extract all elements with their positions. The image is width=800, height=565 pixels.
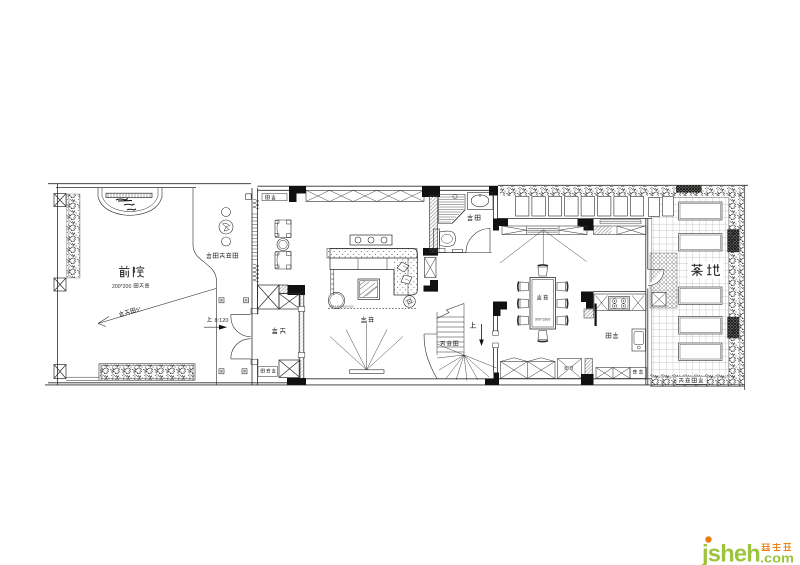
svg-text:.com: .com [760, 551, 794, 565]
svg-text:5°: 5° [136, 306, 142, 313]
svg-text:200*200: 200*200 [112, 284, 131, 290]
svg-text:jsheh: jsheh [701, 541, 760, 565]
svg-text:600 1200*600 600: 600 1200*600 600 [329, 305, 354, 309]
svg-text:900*1800: 900*1800 [535, 318, 550, 322]
svg-text:8:120: 8:120 [215, 318, 229, 324]
